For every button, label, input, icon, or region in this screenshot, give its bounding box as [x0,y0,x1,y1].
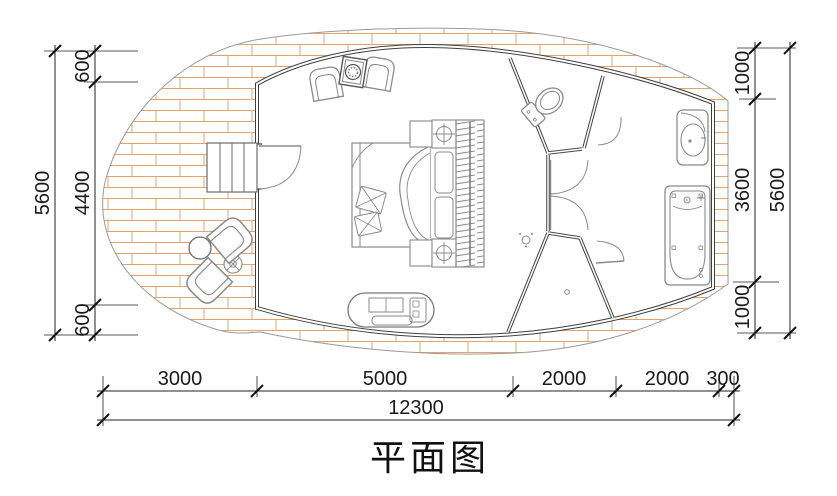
dim-bottom-3000: 3000 [158,368,203,390]
bathtub [665,186,710,285]
nightstand-top [410,120,456,148]
dim-left-600-bottom: 600 [72,303,94,336]
nightstand-bottom [410,239,456,267]
dim-bottom-2000-b: 2000 [645,368,690,390]
dim-bottom-total-12300: 12300 [388,397,444,419]
dim-right-total-5600: 5600 [767,168,789,213]
dim-left-4400: 4400 [72,171,94,216]
dim-bottom-300: 300 [706,368,739,390]
dim-right-1000-top: 1000 [732,51,754,96]
double-bed [352,143,430,247]
side-table [339,56,367,87]
dim-left-600-top: 600 [72,49,94,82]
armchair-left [308,66,343,102]
dim-left-total-5600: 5600 [32,171,54,216]
wardrobe [456,120,484,267]
floor-plan-svg: 600 4400 600 5600 1000 3600 1000 5600 30… [0,0,837,496]
washbasin [677,110,708,165]
drawing-title: 平面图 [370,437,490,478]
tv-bench [348,293,434,327]
floor-plan-page: 600 4400 600 5600 1000 3600 1000 5600 30… [0,0,837,496]
dim-right-3600: 3600 [732,168,754,213]
dim-bottom-5000: 5000 [363,368,408,390]
dim-bottom-2000-a: 2000 [542,368,587,390]
entry-stairs [207,143,257,192]
pillow-2 [354,212,382,237]
dim-right-1000-bottom: 1000 [732,285,754,330]
deck-table [189,237,211,259]
